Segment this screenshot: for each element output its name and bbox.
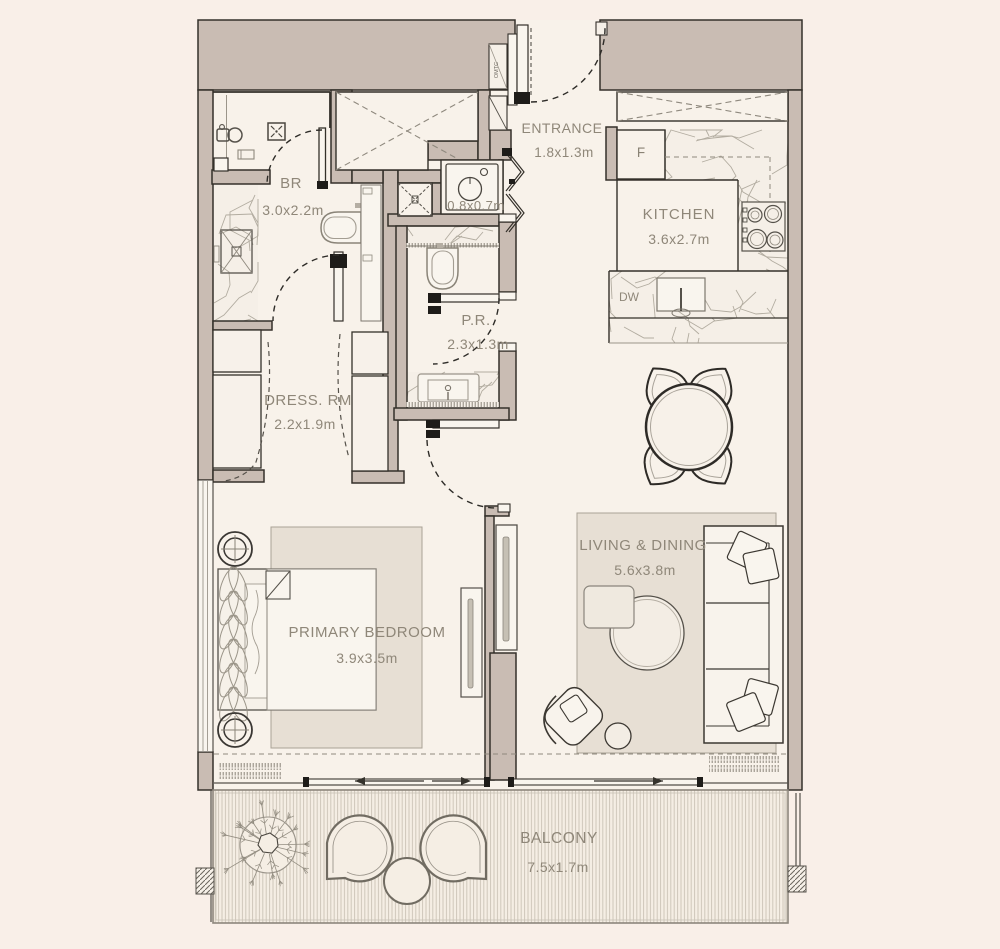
svg-text:BR: BR: [280, 175, 302, 192]
svg-text:0.8x0.7m: 0.8x0.7m: [447, 198, 504, 213]
svg-text:F: F: [637, 145, 645, 160]
svg-text:5.6x3.8m: 5.6x3.8m: [614, 562, 676, 578]
svg-text:2.3x1.3m: 2.3x1.3m: [447, 336, 509, 352]
svg-text:ENTRANCE: ENTRANCE: [521, 120, 602, 136]
svg-text:DW: DW: [619, 290, 640, 304]
svg-text:LIVING & DINING: LIVING & DINING: [579, 537, 707, 554]
svg-text:PRIMARY BEDROOM: PRIMARY BEDROOM: [289, 624, 446, 641]
svg-text:OMTC: OMTC: [494, 62, 500, 78]
svg-text:KITCHEN: KITCHEN: [643, 206, 716, 223]
svg-text:3.0x2.2m: 3.0x2.2m: [262, 202, 324, 218]
svg-text:DRESS. RM: DRESS. RM: [264, 392, 352, 409]
svg-text:3.9x3.5m: 3.9x3.5m: [336, 650, 398, 666]
svg-text:P.R.: P.R.: [461, 312, 490, 329]
svg-text:2.2x1.9m: 2.2x1.9m: [274, 416, 336, 432]
svg-text:1.8x1.3m: 1.8x1.3m: [534, 145, 594, 160]
svg-text:3.6x2.7m: 3.6x2.7m: [648, 231, 710, 247]
svg-text:BALCONY: BALCONY: [520, 830, 598, 847]
svg-text:7.5x1.7m: 7.5x1.7m: [527, 859, 589, 875]
